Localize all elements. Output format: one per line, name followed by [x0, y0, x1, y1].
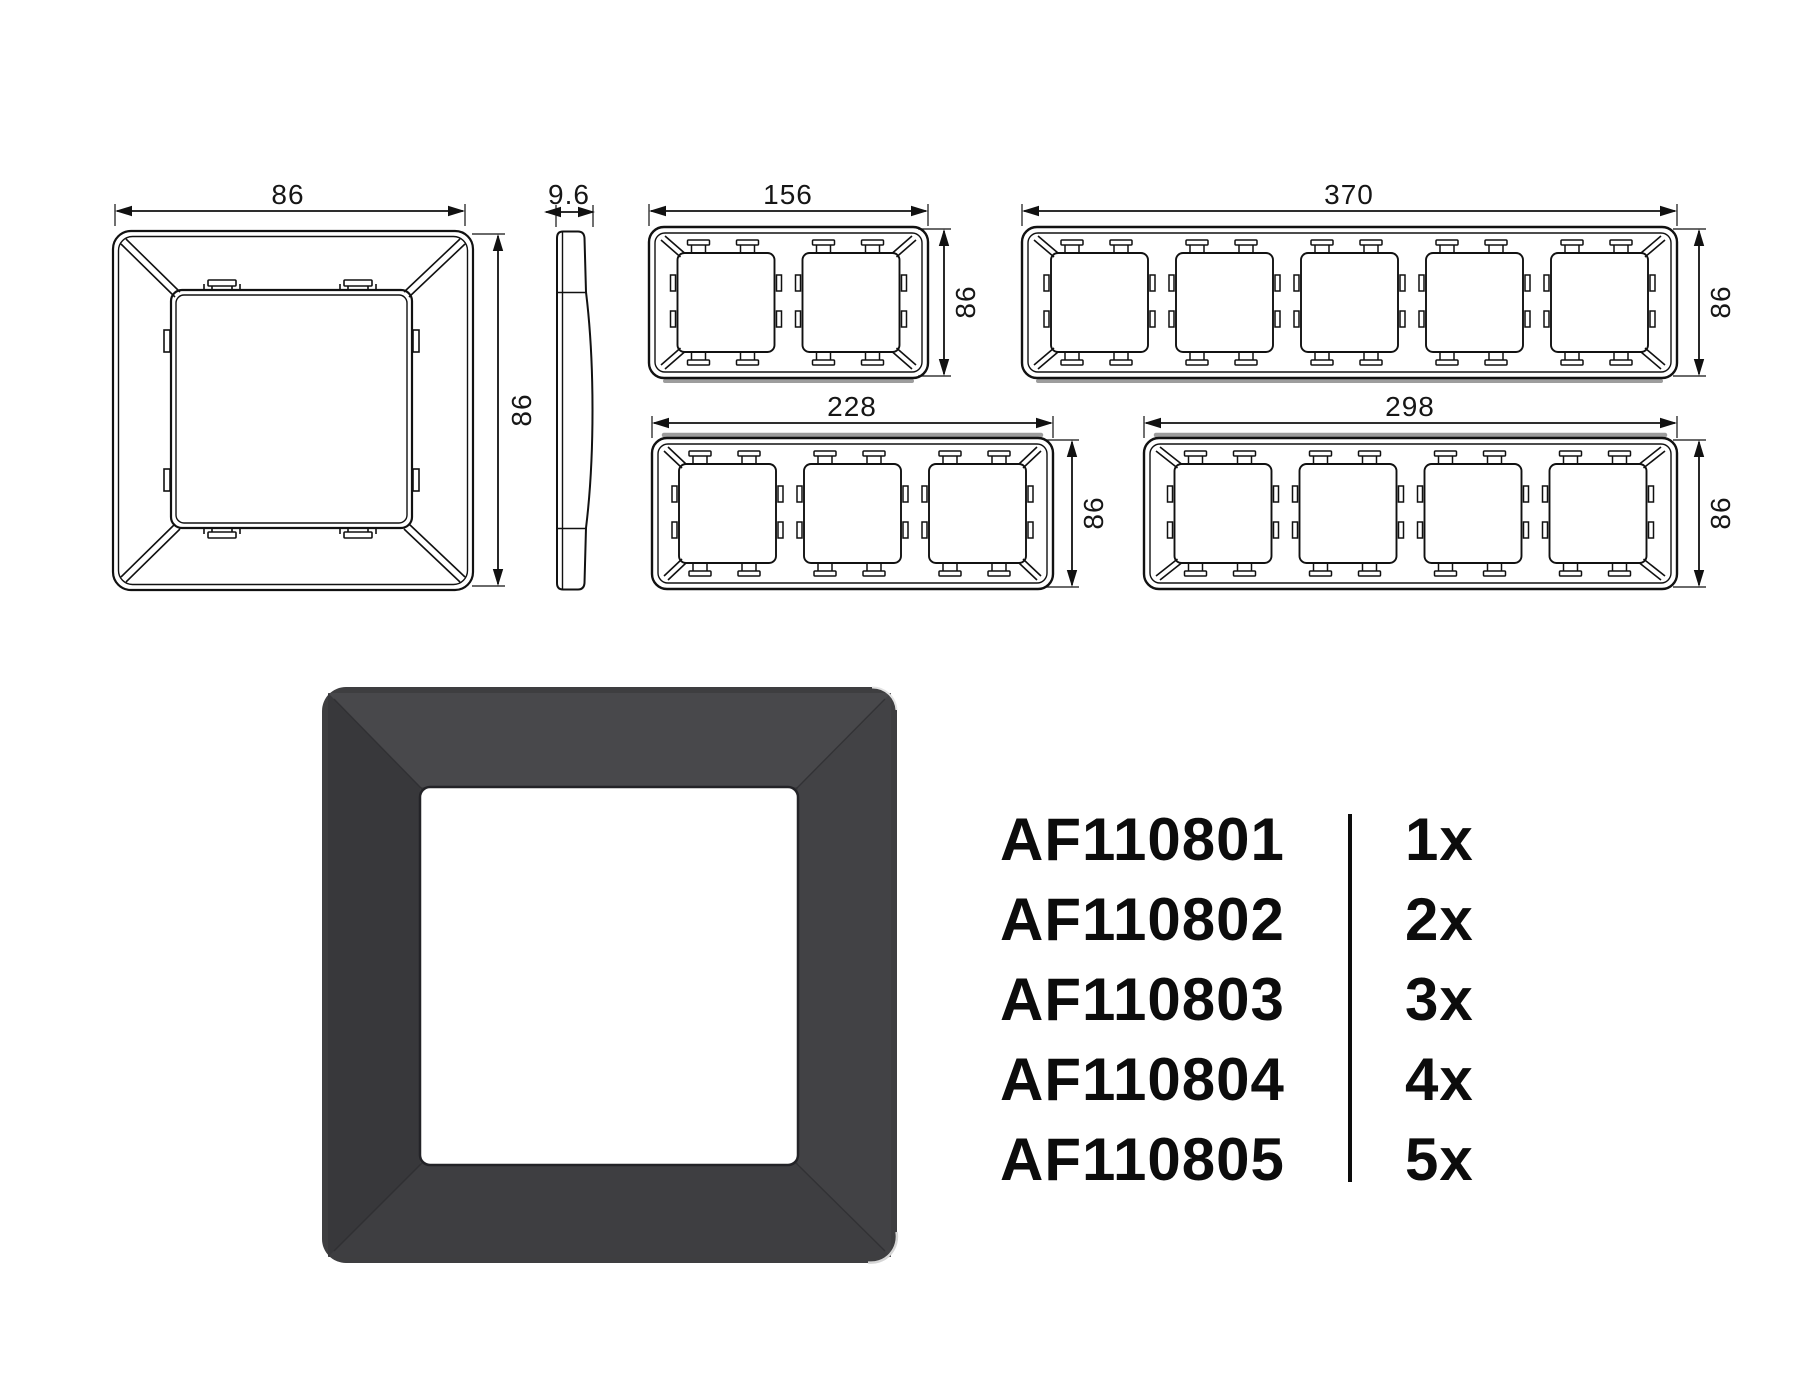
part-number: AF110804 — [1000, 1040, 1285, 1120]
part-number: AF110803 — [1000, 960, 1285, 1040]
datasheet-canvas: 86 9.6 156 370 228 298 86 86 86 86 86 — [0, 0, 1800, 1400]
table-row: AF110804 4x — [1000, 1040, 1560, 1120]
part-number: AF110805 — [1000, 1120, 1285, 1200]
quantity: 5x — [1405, 1120, 1474, 1200]
part-number: AF110802 — [1000, 880, 1285, 960]
table-row: AF110802 2x — [1000, 880, 1560, 960]
table-row: AF110805 5x — [1000, 1120, 1560, 1200]
quantity: 1x — [1405, 800, 1474, 880]
quantity: 3x — [1405, 960, 1474, 1040]
product-table: AF110801 1x AF110802 2x AF110803 3x AF11… — [0, 0, 1800, 1400]
part-number: AF110801 — [1000, 800, 1285, 880]
table-row: AF110803 3x — [1000, 960, 1560, 1040]
quantity: 4x — [1405, 1040, 1474, 1120]
quantity: 2x — [1405, 880, 1474, 960]
table-row: AF110801 1x — [1000, 800, 1560, 880]
